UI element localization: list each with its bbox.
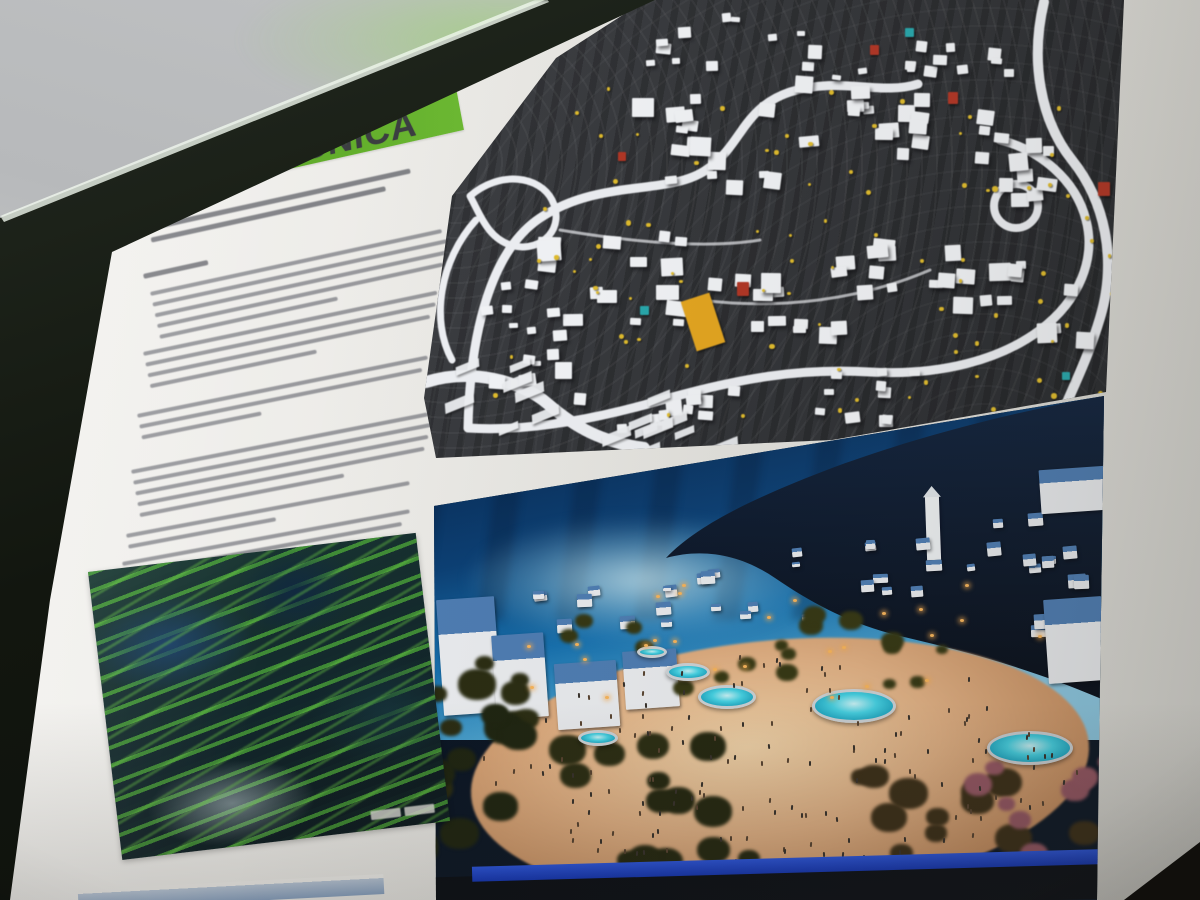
window-light — [960, 619, 964, 622]
foliage — [575, 614, 593, 628]
tree-marker — [954, 350, 958, 354]
model-building — [1036, 177, 1057, 192]
person — [634, 732, 636, 737]
person — [542, 771, 544, 776]
tree-marker — [619, 334, 624, 339]
person — [853, 745, 855, 750]
foliage — [440, 818, 478, 849]
tree-marker — [808, 183, 811, 186]
window-light — [644, 644, 648, 647]
tree-marker — [1037, 378, 1042, 383]
person — [682, 739, 684, 744]
person — [742, 722, 744, 727]
village-house — [533, 591, 544, 600]
village-house — [740, 611, 751, 620]
person — [968, 677, 970, 682]
village-house — [915, 537, 930, 550]
window-light — [678, 592, 682, 595]
person — [545, 718, 547, 723]
village-house — [993, 518, 1004, 528]
person — [806, 688, 808, 693]
tree-marker — [1038, 299, 1043, 304]
foliage — [803, 606, 826, 624]
model-building — [597, 290, 617, 303]
person — [652, 777, 654, 782]
tree-marker — [787, 292, 790, 295]
pool — [578, 730, 618, 746]
person — [652, 833, 654, 838]
person — [671, 725, 673, 730]
model-building — [573, 392, 586, 405]
tree-marker — [959, 279, 962, 282]
window-light — [930, 634, 934, 637]
person — [791, 805, 793, 810]
foliage — [998, 797, 1015, 811]
person — [673, 801, 675, 806]
person — [942, 838, 944, 843]
window-light — [767, 616, 771, 619]
model-building — [706, 61, 718, 72]
person — [824, 672, 826, 677]
foliage — [714, 671, 729, 683]
pool — [698, 685, 756, 709]
model-building — [991, 57, 1002, 64]
person — [978, 738, 980, 743]
tree-marker — [1108, 254, 1111, 257]
person — [899, 731, 901, 736]
foliage — [859, 765, 888, 788]
village-house — [882, 586, 892, 595]
pool — [987, 731, 1073, 765]
person — [1033, 765, 1035, 770]
person — [730, 836, 732, 841]
tree-marker — [968, 115, 972, 119]
person — [699, 790, 701, 795]
person — [733, 683, 735, 688]
person — [883, 759, 885, 764]
person — [774, 810, 776, 815]
person — [1076, 770, 1078, 775]
model-building — [697, 410, 712, 420]
model-building — [689, 94, 700, 104]
person — [608, 789, 610, 794]
person — [825, 811, 827, 816]
person — [927, 749, 929, 754]
model-building — [875, 128, 894, 140]
foliage — [881, 632, 904, 650]
person — [914, 774, 916, 779]
tree-marker — [671, 272, 674, 275]
model-building — [831, 370, 843, 379]
model-building — [674, 236, 687, 246]
model-building — [851, 86, 871, 99]
window-light — [743, 665, 747, 668]
foliage — [839, 611, 863, 630]
person — [775, 658, 777, 663]
tree-marker — [543, 207, 547, 211]
tree-marker — [838, 408, 842, 412]
model-building — [945, 43, 955, 53]
model-building — [502, 305, 512, 313]
person — [688, 715, 690, 720]
model-building — [501, 281, 512, 290]
text-line — [143, 260, 209, 279]
person — [948, 708, 950, 713]
person — [836, 817, 839, 822]
window-light — [575, 643, 579, 646]
village-house — [1063, 545, 1078, 559]
person — [600, 839, 602, 844]
model-building — [699, 395, 714, 408]
person — [572, 838, 574, 843]
person — [778, 662, 780, 667]
tree-marker — [720, 106, 724, 110]
model-building — [731, 16, 740, 21]
terrain-artwork — [88, 533, 450, 860]
model-building — [976, 109, 995, 126]
model-building — [933, 55, 947, 66]
person — [968, 713, 970, 718]
model-building — [768, 33, 777, 41]
person — [1044, 754, 1046, 759]
model-building — [824, 389, 834, 395]
person — [580, 721, 582, 726]
window-light — [583, 658, 587, 661]
person — [642, 714, 644, 719]
model-building — [563, 314, 584, 326]
village-house — [986, 541, 1001, 556]
accent-marker — [618, 152, 626, 161]
accent-marker — [1062, 372, 1070, 380]
person — [907, 714, 909, 719]
window-light — [793, 599, 797, 602]
model-building — [725, 180, 742, 196]
tree-marker — [953, 333, 958, 338]
person — [1027, 755, 1029, 760]
person — [883, 748, 885, 753]
model-building — [911, 134, 930, 151]
model-building — [630, 257, 648, 268]
model-building — [632, 98, 654, 117]
model-building — [807, 44, 822, 58]
window-light — [919, 608, 923, 611]
person — [763, 663, 765, 668]
model-building — [1064, 284, 1078, 297]
person — [895, 732, 897, 737]
model-building — [997, 296, 1012, 305]
tree-marker — [637, 338, 641, 342]
person — [805, 813, 807, 818]
person — [979, 816, 981, 821]
person — [904, 837, 906, 842]
tree-marker — [1051, 393, 1056, 398]
person — [734, 754, 736, 759]
person — [702, 793, 704, 798]
person — [624, 849, 626, 854]
model-building — [979, 125, 991, 136]
pool — [666, 663, 710, 681]
person — [710, 754, 713, 759]
window-light — [965, 584, 969, 587]
model-building — [857, 284, 874, 300]
model-building — [602, 235, 621, 249]
foliage — [694, 796, 733, 827]
model-building — [659, 231, 672, 243]
foliage — [738, 657, 756, 671]
person — [570, 829, 572, 834]
person — [1042, 801, 1044, 806]
person — [590, 770, 592, 775]
person — [645, 703, 647, 708]
foliage — [871, 803, 908, 832]
village-house — [866, 540, 876, 549]
foliage — [560, 763, 591, 788]
tree-marker — [575, 111, 579, 115]
model-building — [999, 178, 1013, 192]
model-building — [547, 349, 559, 360]
model-building — [678, 26, 692, 38]
model-building — [1004, 69, 1014, 77]
foliage — [447, 748, 476, 771]
model-building — [909, 370, 920, 376]
person — [745, 836, 747, 841]
foliage — [936, 645, 947, 654]
person — [740, 681, 742, 686]
village-house — [655, 602, 671, 616]
accent-marker — [737, 282, 749, 296]
person — [809, 761, 811, 766]
model-building — [937, 272, 955, 288]
tree-marker — [599, 134, 603, 138]
tree-marker — [774, 150, 779, 155]
person — [560, 757, 562, 762]
person — [639, 811, 641, 816]
person — [618, 728, 620, 733]
person — [986, 706, 988, 711]
foliage — [926, 808, 948, 826]
pool — [637, 646, 667, 658]
foliage — [646, 789, 676, 813]
model-building — [664, 176, 677, 185]
person — [666, 848, 668, 853]
person — [657, 829, 659, 834]
village-house — [1023, 553, 1037, 566]
model-building — [832, 74, 842, 80]
person — [848, 838, 850, 843]
person — [769, 798, 771, 803]
tree-marker — [1050, 153, 1054, 157]
foliage — [500, 721, 537, 750]
village-house — [1027, 512, 1042, 526]
tree-marker — [920, 259, 924, 263]
person — [839, 665, 841, 670]
window-light — [830, 696, 834, 699]
window-light — [682, 584, 686, 587]
person — [967, 804, 969, 809]
model-building — [957, 64, 969, 74]
model-building — [794, 76, 813, 94]
window-light — [865, 685, 869, 688]
window-light — [828, 650, 832, 653]
tree-marker — [554, 255, 558, 259]
person — [611, 831, 613, 836]
village-house — [791, 547, 802, 557]
village-house — [926, 560, 942, 572]
model-building — [1009, 152, 1030, 172]
tree-marker — [900, 99, 904, 103]
person — [742, 806, 744, 811]
tree-marker — [694, 161, 699, 166]
model-building — [630, 318, 642, 326]
foliage — [637, 733, 670, 759]
person — [495, 781, 497, 786]
model-building — [945, 244, 962, 261]
model-building — [867, 244, 889, 259]
person — [720, 726, 722, 731]
person — [1019, 798, 1021, 803]
tree-marker — [962, 183, 967, 188]
foreground-house — [1039, 466, 1108, 514]
model-building — [689, 136, 711, 156]
person — [530, 764, 532, 769]
window-light — [842, 646, 846, 649]
person — [642, 801, 644, 806]
tree-marker — [667, 413, 670, 416]
window-light — [656, 595, 660, 598]
person — [623, 682, 625, 687]
person — [549, 764, 551, 769]
tree-marker — [994, 313, 999, 318]
village-house — [873, 573, 889, 583]
model-building — [768, 316, 786, 327]
model-building — [882, 414, 893, 424]
model-building — [553, 330, 568, 342]
model-building — [758, 102, 776, 117]
model-building — [509, 323, 518, 329]
person — [972, 833, 974, 838]
accent-marker — [1098, 182, 1110, 196]
person — [577, 822, 579, 827]
window-light — [925, 679, 929, 682]
village-house — [576, 594, 592, 607]
tree-marker — [992, 186, 997, 191]
model-building — [896, 147, 909, 159]
model-building — [877, 367, 888, 376]
model-building — [914, 93, 930, 107]
tree-marker — [679, 280, 683, 284]
model-building — [868, 266, 885, 280]
accent-marker — [870, 45, 879, 55]
tree-marker — [769, 344, 774, 349]
model-building — [707, 170, 717, 178]
tree-marker — [1065, 323, 1069, 327]
model-building — [797, 31, 805, 36]
model-building — [655, 39, 668, 47]
village-house — [700, 571, 714, 584]
foliage — [910, 676, 924, 687]
model-building — [1026, 138, 1043, 154]
person — [784, 849, 786, 854]
person — [801, 813, 803, 818]
foliage — [781, 648, 796, 660]
foliage — [964, 773, 993, 796]
person — [578, 693, 580, 698]
person — [875, 758, 877, 763]
foliage — [481, 704, 509, 726]
foliage — [440, 719, 462, 736]
person — [768, 744, 770, 749]
foliage — [985, 761, 1003, 776]
person — [1029, 805, 1031, 810]
foreground-house — [1043, 596, 1107, 684]
tree-marker — [785, 134, 789, 138]
model-building — [727, 386, 740, 397]
person — [909, 769, 911, 774]
model-building — [844, 411, 860, 424]
person — [513, 769, 515, 774]
model-building — [923, 65, 937, 77]
foliage — [458, 669, 496, 699]
photo-of-presentation-board: NOVA KOREŠNICA — [0, 0, 1200, 900]
tree-marker — [1085, 216, 1089, 220]
tree-marker — [624, 340, 627, 343]
person — [985, 749, 987, 754]
person — [572, 799, 574, 804]
model-building — [908, 120, 927, 135]
foliage — [626, 621, 642, 634]
person — [894, 752, 896, 757]
person — [941, 782, 943, 787]
accent-marker — [948, 92, 958, 104]
tree-marker — [908, 396, 911, 399]
person — [635, 851, 637, 856]
model-building — [1008, 263, 1024, 277]
person — [659, 811, 661, 816]
model-building — [708, 278, 723, 292]
person — [955, 815, 957, 820]
model-building — [763, 171, 782, 190]
person — [727, 759, 729, 764]
person — [810, 707, 812, 712]
village-house — [911, 586, 924, 598]
model-building — [670, 144, 690, 157]
model-building — [907, 64, 915, 72]
person — [714, 736, 716, 741]
village-house — [1042, 555, 1055, 567]
model-building — [875, 381, 886, 392]
person — [588, 810, 590, 815]
model-building — [547, 308, 561, 318]
pool — [812, 689, 896, 723]
person — [821, 666, 823, 671]
model-building — [673, 319, 684, 327]
person — [829, 688, 831, 693]
model-building — [793, 326, 806, 333]
person — [970, 809, 972, 814]
person — [590, 792, 592, 797]
model-building — [831, 321, 848, 336]
model-building — [645, 59, 655, 65]
model-building — [480, 305, 493, 315]
person — [810, 842, 812, 847]
model-building — [802, 62, 814, 72]
person — [648, 777, 650, 782]
tree-marker — [762, 289, 765, 292]
person — [1063, 780, 1066, 785]
person — [483, 756, 485, 761]
tree-marker — [866, 190, 871, 195]
accent-marker — [640, 306, 649, 315]
